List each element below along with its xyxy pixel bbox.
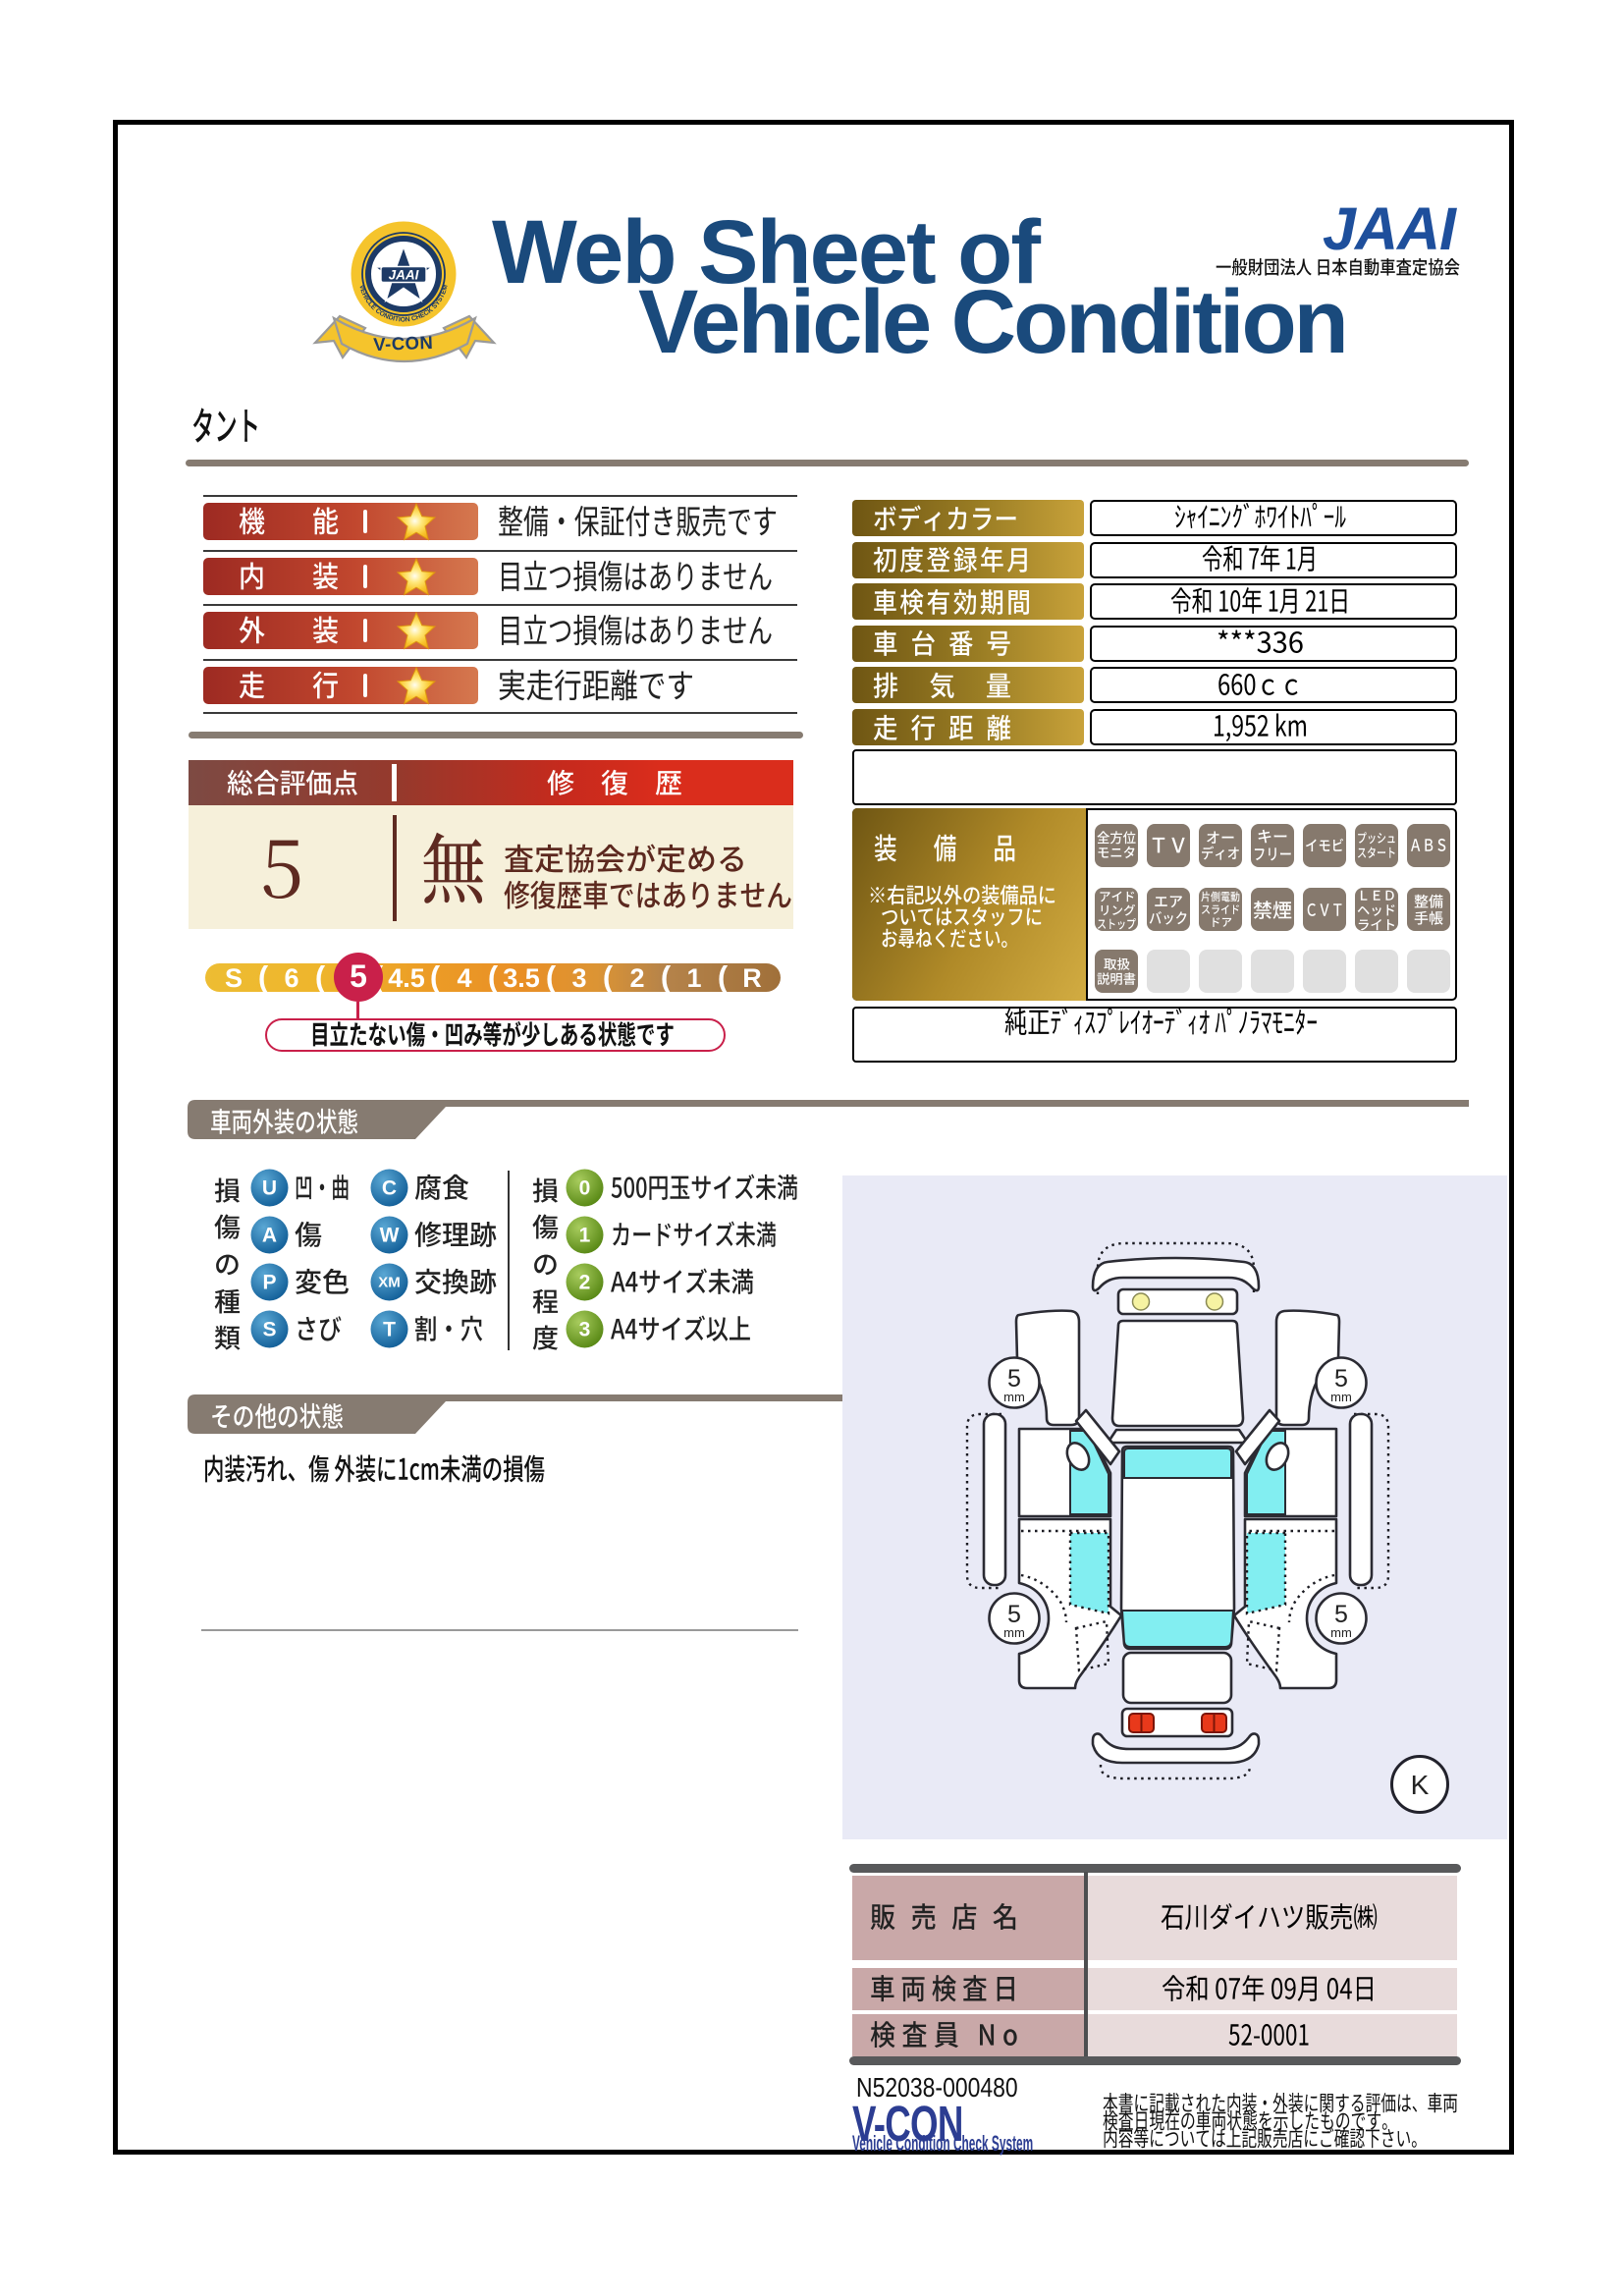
svg-text:mm: mm [1003, 1390, 1025, 1404]
svg-text:5: 5 [1007, 1365, 1021, 1393]
svg-text:mm: mm [1330, 1390, 1352, 1404]
svg-text:T: T [383, 1318, 396, 1340]
svg-text:5: 5 [1334, 1365, 1348, 1393]
svg-text:P: P [263, 1271, 277, 1293]
svg-text:S: S [263, 1318, 277, 1340]
svg-text:mm: mm [1003, 1625, 1025, 1640]
svg-text:3: 3 [578, 1318, 590, 1340]
svg-text:U: U [262, 1176, 277, 1199]
svg-text:JAAI: JAAI [389, 268, 419, 283]
svg-text:A: A [262, 1224, 277, 1246]
svg-text:0: 0 [578, 1176, 590, 1199]
svg-text:W: W [379, 1224, 399, 1246]
svg-text:5: 5 [1334, 1601, 1348, 1628]
svg-text:1: 1 [578, 1224, 590, 1246]
svg-text:2: 2 [578, 1271, 590, 1293]
svg-text:mm: mm [1330, 1625, 1352, 1640]
svg-text:V-CON: V-CON [373, 332, 434, 355]
svg-text:XM: XM [378, 1274, 401, 1290]
svg-text:5: 5 [1007, 1601, 1021, 1628]
svg-text:K: K [1411, 1770, 1430, 1800]
svg-text:C: C [381, 1176, 396, 1199]
